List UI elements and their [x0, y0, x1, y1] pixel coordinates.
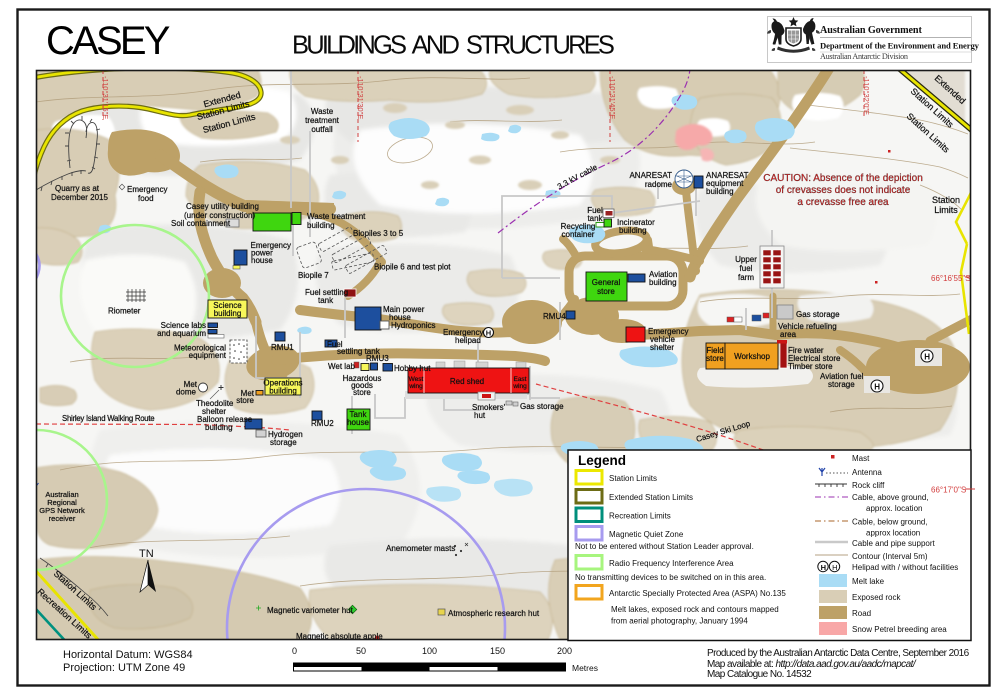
svg-text:building: building: [706, 187, 734, 196]
svg-text:H: H: [486, 329, 491, 338]
svg-text:house: house: [347, 418, 369, 427]
svg-text:Biopile 7: Biopile 7: [298, 271, 329, 280]
svg-text:Recreation Limits: Recreation Limits: [609, 512, 671, 521]
svg-text:H: H: [832, 563, 837, 572]
svg-text:Cable, above ground,: Cable, above ground,: [852, 493, 929, 502]
svg-text:Magnetic Quiet Zone: Magnetic Quiet Zone: [609, 530, 684, 539]
svg-text:storage: storage: [270, 438, 297, 447]
svg-text:Magnetic variometer hut: Magnetic variometer hut: [267, 606, 354, 615]
svg-text:Upper: Upper: [735, 255, 757, 264]
svg-text:Soil containment: Soil containment: [171, 219, 231, 228]
svg-text:Riometer: Riometer: [108, 307, 141, 316]
svg-text:radome: radome: [645, 180, 673, 189]
svg-text:ANARESAT: ANARESAT: [629, 171, 672, 180]
svg-text:Metres: Metres: [572, 663, 598, 673]
svg-text:West: West: [409, 376, 424, 383]
svg-text:H: H: [821, 563, 826, 572]
svg-text:area: area: [780, 330, 797, 339]
svg-text:approx. location: approx. location: [866, 504, 922, 513]
svg-text:helipad: helipad: [455, 336, 481, 345]
svg-text:Horizontal Datum: WGS84: Horizontal Datum: WGS84: [63, 649, 193, 661]
svg-text:store: store: [353, 388, 371, 397]
svg-text:Australian Antarctic Division: Australian Antarctic Division: [820, 52, 908, 61]
svg-text:storage: storage: [828, 380, 855, 389]
svg-text:-110°31'30"E: -110°31'30"E: [356, 76, 365, 119]
svg-text:0: 0: [292, 646, 297, 656]
svg-text:of crevasses does not indicate: of crevasses does not indicate: [776, 185, 911, 196]
svg-text:Not to be entered without Stat: Not to be entered without Station Leader…: [575, 542, 754, 551]
svg-text:equipment: equipment: [189, 351, 227, 360]
svg-text:treatment: treatment: [305, 116, 340, 125]
svg-text:approx location: approx location: [866, 529, 920, 538]
svg-text:RMU2: RMU2: [311, 419, 334, 428]
svg-text:200: 200: [557, 646, 572, 656]
svg-text:RMU4: RMU4: [543, 312, 566, 321]
svg-text:Casey utility building: Casey utility building: [186, 202, 259, 211]
svg-text:Hobby hut: Hobby hut: [394, 364, 431, 373]
svg-text:Limits: Limits: [934, 205, 958, 215]
svg-text:Cable, below ground,: Cable, below ground,: [852, 518, 928, 527]
svg-text:building: building: [649, 278, 677, 287]
svg-text:100: 100: [422, 646, 437, 656]
svg-text:receiver: receiver: [49, 514, 76, 523]
svg-text:wing: wing: [408, 383, 423, 390]
svg-text:Produced by the Australian Ant: Produced by the Australian Antarctic Dat…: [707, 648, 970, 659]
svg-text:CASEY: CASEY: [46, 19, 170, 63]
svg-text:farm: farm: [738, 273, 754, 282]
svg-text:building: building: [269, 387, 297, 396]
svg-text:Cable and pipe support: Cable and pipe support: [852, 539, 936, 548]
svg-text:H: H: [874, 383, 880, 392]
svg-text:building: building: [214, 309, 242, 318]
svg-text:RMU1: RMU1: [271, 343, 294, 352]
svg-text:December 2015: December 2015: [51, 193, 108, 202]
svg-text:building: building: [205, 423, 233, 432]
svg-text:from aerial photography, Janua: from aerial photography, January 1994: [611, 617, 748, 626]
svg-text:Radio Frequency Interference A: Radio Frequency Interference Area: [609, 559, 734, 568]
svg-text:50: 50: [356, 646, 366, 656]
svg-text:No transmitting devices to be: No transmitting devices to be switched o…: [575, 573, 766, 582]
svg-text:Waste treatment: Waste treatment: [307, 212, 366, 221]
svg-text:Timber store: Timber store: [788, 362, 833, 371]
svg-text:Projection: UTM Zone 49: Projection: UTM Zone 49: [63, 662, 185, 674]
svg-text:66°16'55"S: 66°16'55"S: [931, 274, 971, 283]
svg-text:shelter: shelter: [650, 343, 674, 352]
svg-text:hut: hut: [474, 411, 486, 420]
svg-text:Gas storage: Gas storage: [796, 310, 840, 319]
svg-text:Workshop: Workshop: [734, 352, 770, 361]
svg-text:RMU3: RMU3: [366, 354, 389, 363]
svg-text:Melt lakes, exposed rock and c: Melt lakes, exposed rock and contours ma…: [611, 605, 779, 614]
svg-text:dome: dome: [176, 388, 197, 397]
svg-text:Antenna: Antenna: [852, 468, 882, 477]
svg-text:Mast: Mast: [852, 454, 870, 463]
svg-text:-110°31'15"E: -110°31'15"E: [101, 76, 110, 119]
svg-text:Melt lake: Melt lake: [852, 577, 885, 586]
svg-text:Red shed: Red shed: [450, 377, 484, 386]
svg-text:outfall: outfall: [311, 125, 333, 134]
svg-text:Shirley Island Walking Route: Shirley Island Walking Route: [62, 414, 154, 423]
svg-text:Wet lab: Wet lab: [328, 362, 356, 371]
svg-text:Exposed rock: Exposed rock: [852, 593, 901, 602]
svg-text:house: house: [251, 256, 273, 265]
svg-text:store: store: [597, 287, 615, 296]
svg-text:Legend: Legend: [578, 453, 626, 468]
svg-text:Station: Station: [932, 195, 960, 205]
svg-text:General: General: [592, 278, 621, 287]
svg-text:fuel: fuel: [740, 264, 753, 273]
svg-text:150: 150: [490, 646, 505, 656]
svg-text:a crevasse free area: a crevasse free area: [797, 197, 889, 208]
svg-text:BUILDINGS AND STRUCTURES: BUILDINGS AND STRUCTURES: [292, 32, 614, 60]
svg-text:Snow Petrel breeding area: Snow Petrel breeding area: [852, 625, 947, 634]
svg-text:Station Limits: Station Limits: [609, 474, 657, 483]
svg-text:Rock cliff: Rock cliff: [852, 481, 885, 490]
svg-text:Extended Station Limits: Extended Station Limits: [609, 493, 693, 502]
svg-text:Anemometer masts: Anemometer masts: [386, 544, 455, 553]
svg-text:TN: TN: [139, 548, 154, 560]
svg-text:Antarctic Specially Protected: Antarctic Specially Protected Area (ASPA…: [609, 589, 786, 598]
svg-text:Helipad with / without facilit: Helipad with / without facilities: [852, 563, 958, 572]
svg-text:Biopile 6 and test plot: Biopile 6 and test plot: [374, 263, 451, 272]
svg-text:Map Catalogue No. 14532: Map Catalogue No. 14532: [707, 669, 812, 680]
svg-text:66°17'0"S: 66°17'0"S: [931, 486, 966, 495]
svg-text:Road: Road: [852, 609, 871, 618]
svg-text:Gas storage: Gas storage: [520, 402, 564, 411]
svg-text:food: food: [138, 194, 154, 203]
svg-text:Hydroponics: Hydroponics: [391, 321, 435, 330]
svg-text:Department of the Environment: Department of the Environment and Energy: [820, 41, 980, 51]
svg-text:building: building: [619, 226, 647, 235]
svg-text:East: East: [513, 376, 526, 383]
svg-text:Australian Government: Australian Government: [820, 25, 922, 36]
svg-text:Quarry as at: Quarry as at: [55, 184, 100, 193]
svg-text:Emergency: Emergency: [127, 185, 167, 194]
svg-text:building: building: [307, 221, 335, 230]
svg-text:Waste: Waste: [311, 107, 334, 116]
svg-text:Atmospheric research hut: Atmospheric research hut: [448, 609, 540, 618]
svg-text:wing: wing: [512, 383, 527, 390]
svg-text:Biopiles 3 to 5: Biopiles 3 to 5: [353, 229, 404, 238]
svg-text:store: store: [706, 354, 724, 363]
svg-text:H: H: [924, 353, 930, 362]
svg-text:and aquarium: and aquarium: [157, 329, 206, 338]
svg-text:-110°31'45"E: -110°31'45"E: [608, 76, 617, 119]
svg-text:container: container: [562, 230, 595, 239]
svg-text:Contour (Interval 5m): Contour (Interval 5m): [852, 552, 928, 561]
svg-text:store: store: [236, 396, 254, 405]
svg-text:-110°32'0"E: -110°32'0"E: [862, 76, 871, 115]
svg-text:tank: tank: [318, 296, 334, 305]
svg-text:CAUTION: Absence of the depict: CAUTION: Absence of the depiction: [763, 173, 923, 184]
